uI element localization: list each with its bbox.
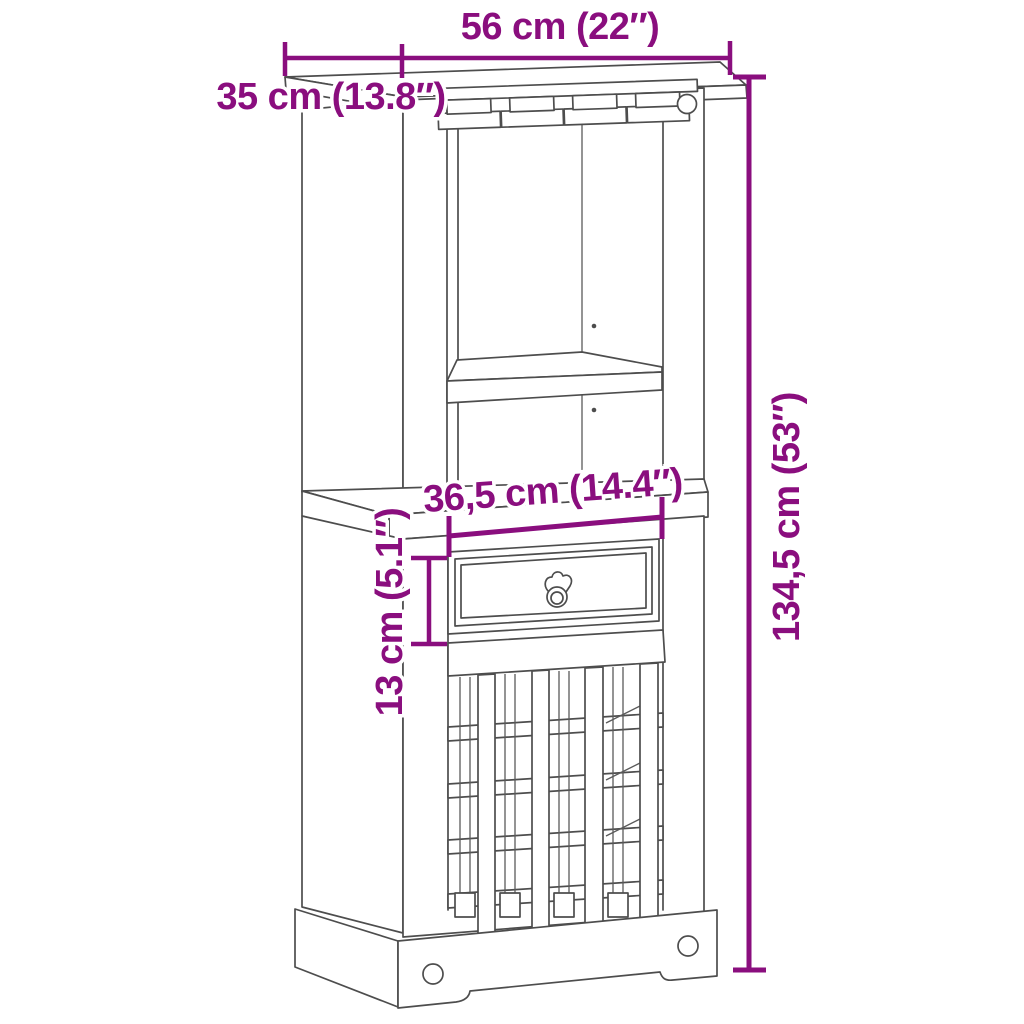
rack-front-slat (640, 663, 658, 940)
rack-foot-tab (608, 893, 628, 917)
glass-rack-bracket (510, 96, 554, 112)
depth-label: 35 cm (13.8″) (216, 76, 445, 118)
plinth-dowel-knob (678, 936, 698, 956)
cabinet (285, 62, 747, 1008)
glass-rack-bracket (573, 94, 617, 110)
glass-rack-bracket (636, 92, 680, 108)
corner-dowel-knob (678, 95, 697, 114)
drawer-height-label: 13 cm (5.1″) (369, 508, 411, 717)
plinth-dowel-knob (423, 964, 443, 984)
drawer (448, 539, 659, 634)
shelf-pin-hole (592, 324, 597, 329)
rack-foot-tab (554, 893, 574, 917)
rack-front-slat (478, 674, 495, 940)
lower-carcass (302, 516, 704, 940)
upper-front-face (403, 88, 704, 500)
diagram-canvas: 56 cm (22″) 35 cm (13.8″) 36,5 cm (14.4″… (0, 0, 1024, 1024)
glass-rack-bracket (447, 99, 491, 115)
upper-carcass (302, 79, 704, 502)
width-label: 56 cm (22″) (461, 6, 660, 48)
cabinet-line-drawing: 56 cm (22″) 35 cm (13.8″) 36,5 cm (14.4″… (0, 0, 1024, 1024)
rack-foot-tab (500, 893, 520, 917)
rack-front-slat (585, 667, 603, 940)
rack-front-slat (532, 670, 549, 940)
upper-left-side-panel (302, 100, 403, 502)
shelf-pin-hole (592, 408, 597, 413)
height-dimension (733, 77, 766, 970)
height-label: 134,5 cm (53″) (766, 392, 808, 642)
rack-foot-tab (455, 893, 475, 917)
